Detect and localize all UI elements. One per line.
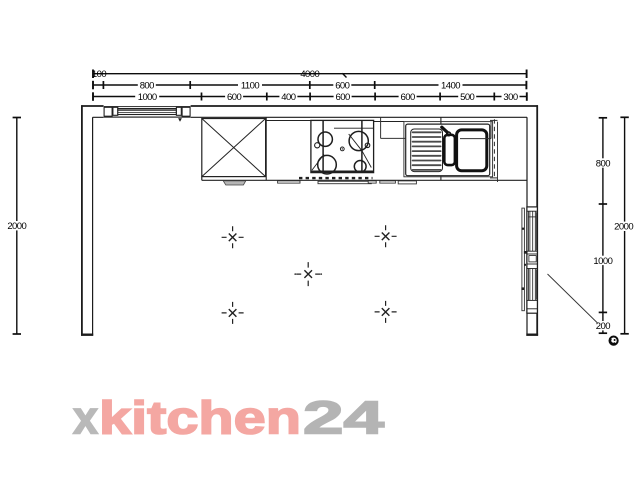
svg-text:1000: 1000	[138, 92, 157, 103]
svg-text:24: 24	[303, 392, 385, 444]
svg-text:2000: 2000	[614, 222, 633, 233]
svg-text:1100: 1100	[241, 80, 259, 91]
svg-text:300: 300	[503, 92, 517, 103]
svg-text:500: 500	[460, 92, 474, 103]
svg-text:600: 600	[335, 80, 349, 91]
svg-text:100: 100	[92, 69, 106, 80]
svg-text:800: 800	[596, 158, 610, 169]
svg-text:1000: 1000	[593, 256, 612, 267]
svg-text:400: 400	[281, 92, 295, 103]
svg-text:600: 600	[227, 92, 241, 103]
svg-text:kitchen: kitchen	[99, 392, 301, 444]
svg-text:x: x	[73, 392, 98, 444]
svg-text:800: 800	[140, 80, 154, 91]
svg-text:600: 600	[335, 92, 349, 103]
svg-text:600: 600	[400, 92, 414, 103]
svg-text:200: 200	[596, 321, 610, 332]
svg-text:2000: 2000	[7, 221, 26, 232]
svg-text:1400: 1400	[441, 80, 460, 91]
svg-text:4000: 4000	[300, 69, 319, 80]
